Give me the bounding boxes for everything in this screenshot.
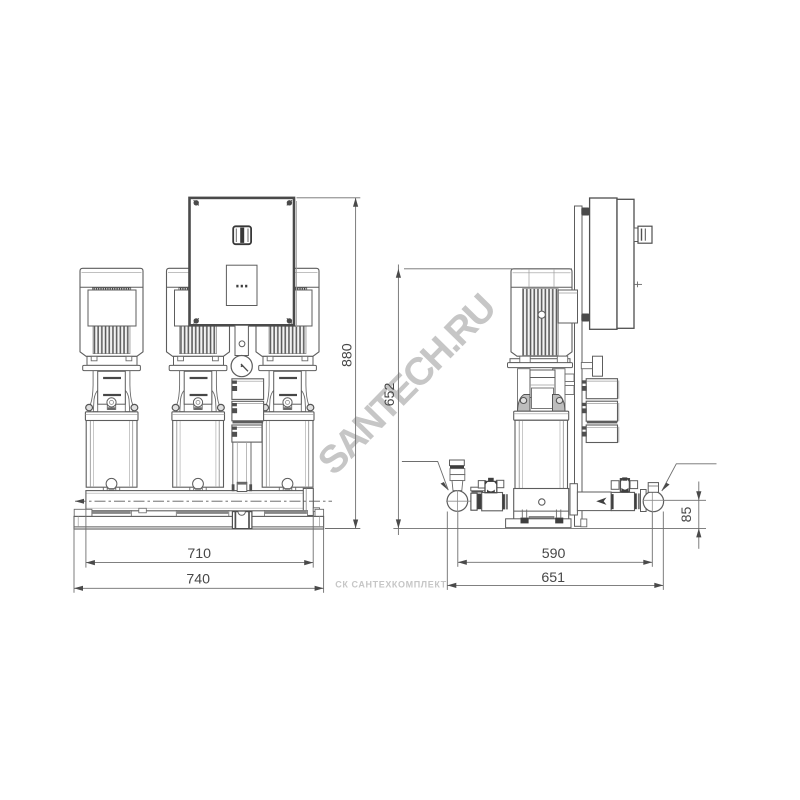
svg-text:СК САНТЕХКОМПЛЕКТ: СК САНТЕХКОМПЛЕКТ bbox=[335, 579, 446, 589]
svg-text:85: 85 bbox=[679, 507, 695, 523]
svg-text:740: 740 bbox=[186, 572, 210, 588]
svg-text:880: 880 bbox=[339, 343, 355, 367]
svg-text:651: 651 bbox=[541, 570, 565, 586]
svg-text:652: 652 bbox=[382, 383, 398, 407]
svg-text:590: 590 bbox=[542, 546, 566, 562]
svg-text:710: 710 bbox=[187, 546, 211, 562]
